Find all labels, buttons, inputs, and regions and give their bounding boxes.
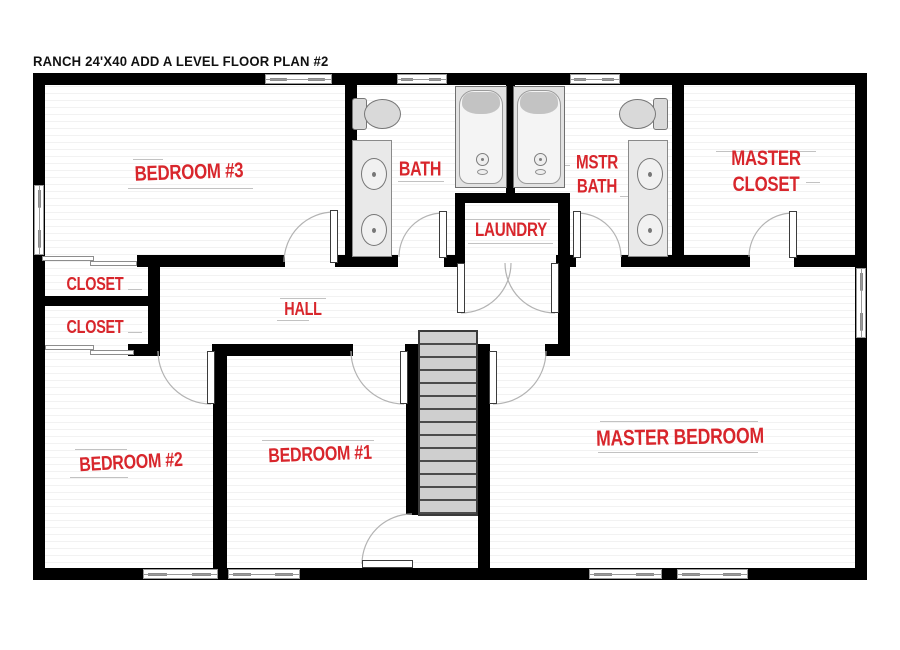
wall-outer-top: [33, 73, 867, 85]
wall-hall-south-3: [405, 344, 418, 356]
wall-outer-right: [855, 73, 867, 580]
wall-hall-north-2: [335, 255, 398, 267]
wall-hall-south-2: [212, 344, 353, 356]
plan-title: RANCH 24'X40 ADD A LEVEL FLOOR PLAN #2: [33, 54, 328, 69]
wall-bath-mstrbath-divider: [506, 79, 515, 203]
label-bedroom-3: BEDROOM #3: [134, 158, 244, 188]
label-bedroom-1: BEDROOM #1: [268, 441, 372, 470]
wall-hall-south-1: [128, 344, 158, 356]
wall-closet-divider: [33, 296, 160, 306]
wall-hall-north-4: [556, 255, 576, 267]
wall-mastercloset-west: [672, 79, 684, 267]
floor-plan-canvas: RANCH 24'X40 ADD A LEVEL FLOOR PLAN #2: [0, 0, 900, 650]
label-closet-lower: CLOSET: [67, 316, 124, 339]
label-master-bedroom: MASTER BEDROOM: [596, 422, 764, 452]
wall-hall-south-4: [545, 344, 570, 356]
wall-laundry-north: [455, 193, 570, 203]
wall-hall-north-3: [444, 255, 465, 267]
wall-outer-bottom: [33, 568, 867, 580]
wall-bedroom-divider: [213, 344, 227, 580]
label-closet-upper: CLOSET: [67, 273, 124, 296]
wall-hall-north-6: [794, 255, 855, 267]
label-bath: BATH: [399, 158, 441, 183]
wall-outer-left: [33, 73, 45, 580]
label-laundry: LAUNDRY: [475, 219, 547, 243]
wall-hall-north-1: [137, 255, 285, 267]
label-mstr-bath: MSTR BATH: [568, 151, 626, 199]
label-hall: HALL: [284, 298, 321, 321]
wall-stair-west: [406, 344, 418, 515]
wall-laundry-east: [558, 193, 570, 356]
wall-bath-west: [345, 79, 357, 267]
wall-stair-east: [478, 344, 490, 580]
wall-hall-north-5: [621, 255, 750, 267]
label-master-closet: MASTER CLOSET: [718, 146, 814, 199]
